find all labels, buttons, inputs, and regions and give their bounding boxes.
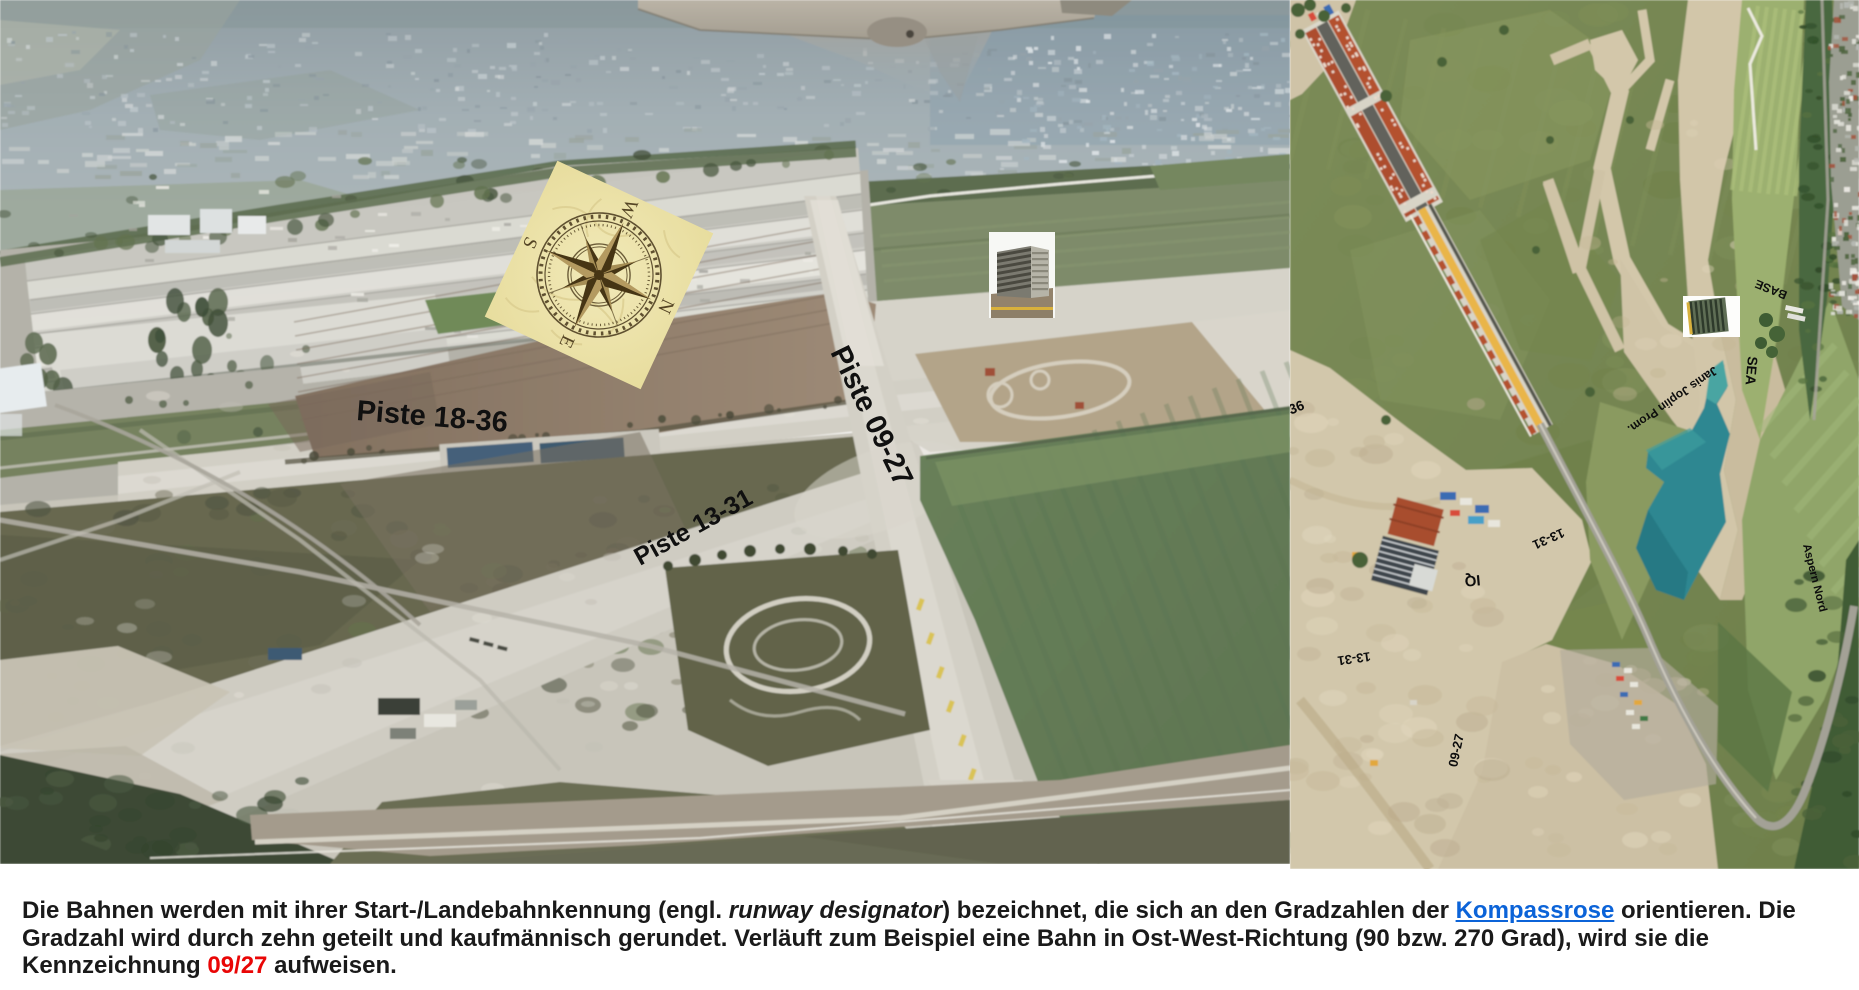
svg-text:IQ: IQ [1464,571,1482,589]
svg-text:SEA: SEA [1743,356,1761,386]
